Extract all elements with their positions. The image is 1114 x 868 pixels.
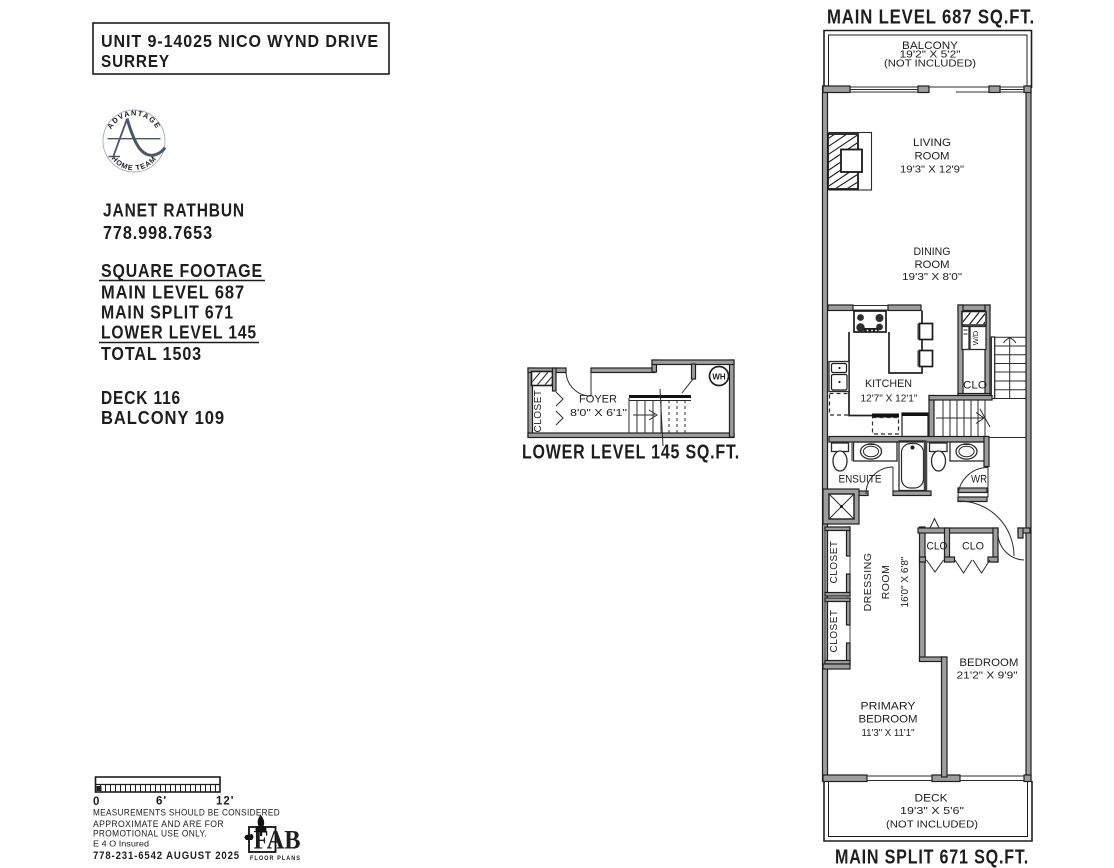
svg-text:PROMOTIONAL USE ONLY.: PROMOTIONAL USE ONLY.: [93, 828, 207, 838]
svg-text:19'3" X 5'6": 19'3" X 5'6": [900, 805, 964, 817]
svg-text:SQUARE FOOTAGE: SQUARE FOOTAGE: [101, 261, 263, 281]
svg-text:ROOM: ROOM: [915, 259, 950, 271]
svg-text:LOWER LEVEL 145: LOWER LEVEL 145: [101, 323, 257, 343]
svg-text:778-231-6542 AUGUST 2025: 778-231-6542 AUGUST 2025: [93, 850, 240, 862]
svg-text:21'2" X 9'9": 21'2" X 9'9": [957, 670, 1018, 682]
svg-text:19'3" X 12'9": 19'3" X 12'9": [900, 164, 964, 176]
svg-text:MAIN SPLIT 671 SQ.FT.: MAIN SPLIT 671 SQ.FT.: [835, 847, 1029, 868]
svg-text:(NOT INCLUDED): (NOT INCLUDED): [886, 819, 978, 831]
svg-text:ENSUITE: ENSUITE: [839, 474, 882, 486]
svg-text:FOYER: FOYER: [579, 394, 617, 406]
svg-text:(NOT INCLUDED): (NOT INCLUDED): [884, 58, 976, 70]
svg-text:CLOSET: CLOSET: [533, 389, 544, 432]
svg-text:PRIMARY: PRIMARY: [861, 701, 917, 713]
svg-text:12'7" X 12'1": 12'7" X 12'1": [861, 393, 918, 405]
svg-text:SURREY: SURREY: [101, 51, 170, 71]
svg-text:CLO: CLO: [927, 541, 948, 553]
svg-text:WR: WR: [971, 474, 987, 486]
svg-text:FLOOR PLANS: FLOOR PLANS: [250, 855, 301, 862]
svg-text:DINING: DINING: [914, 246, 951, 258]
svg-text:W/D: W/D: [971, 330, 980, 345]
svg-text:0: 0: [93, 796, 100, 808]
svg-text:CLO: CLO: [962, 541, 984, 553]
svg-text:11'3" X 11'1": 11'3" X 11'1": [862, 727, 915, 739]
svg-text:LIVING: LIVING: [913, 137, 951, 149]
svg-text:778.998.7653: 778.998.7653: [103, 223, 213, 243]
svg-text:DECK: DECK: [915, 793, 949, 805]
svg-text:LOWER LEVEL 145 SQ.FT.: LOWER LEVEL 145 SQ.FT.: [522, 442, 740, 464]
svg-text:TOTAL 1503: TOTAL 1503: [101, 344, 202, 364]
svg-text:MAIN LEVEL 687 SQ.FT.: MAIN LEVEL 687 SQ.FT.: [827, 7, 1035, 29]
svg-text:CLO: CLO: [963, 380, 987, 392]
svg-text:19'3" X 8'0": 19'3" X 8'0": [902, 271, 962, 283]
svg-text:BEDROOM: BEDROOM: [859, 714, 918, 726]
svg-text:DECK 116: DECK 116: [101, 388, 181, 408]
svg-text:JANET RATHBUN: JANET RATHBUN: [103, 201, 245, 221]
svg-text:MAIN SPLIT 671: MAIN SPLIT 671: [101, 303, 234, 323]
svg-text:MAIN LEVEL 687: MAIN LEVEL 687: [101, 283, 245, 303]
svg-text:DRESSING: DRESSING: [862, 553, 874, 612]
svg-text:WH: WH: [712, 373, 726, 382]
svg-text:8'0" X 6'1": 8'0" X 6'1": [570, 407, 627, 419]
svg-text:6': 6': [156, 796, 167, 808]
svg-text:12': 12': [216, 796, 235, 808]
svg-text:CLOSET: CLOSET: [829, 609, 840, 652]
svg-text:UNIT 9-14025 NICO WYND DRIVE: UNIT 9-14025 NICO WYND DRIVE: [101, 31, 379, 51]
svg-text:BALCONY 109: BALCONY 109: [101, 408, 225, 428]
svg-text:KITCHEN: KITCHEN: [865, 378, 912, 390]
svg-text:16'0" X 6'8": 16'0" X 6'8": [900, 556, 911, 607]
svg-text:ROOM: ROOM: [880, 565, 892, 600]
svg-text:CLOSET: CLOSET: [829, 540, 840, 583]
svg-text:E 4 O Insured: E 4 O Insured: [93, 840, 149, 849]
svg-text:MEASUREMENTS SHOULD BE CONSIDE: MEASUREMENTS SHOULD BE CONSIDERED: [93, 808, 280, 818]
svg-text:BEDROOM: BEDROOM: [959, 657, 1018, 669]
svg-text:ROOM: ROOM: [915, 151, 950, 163]
